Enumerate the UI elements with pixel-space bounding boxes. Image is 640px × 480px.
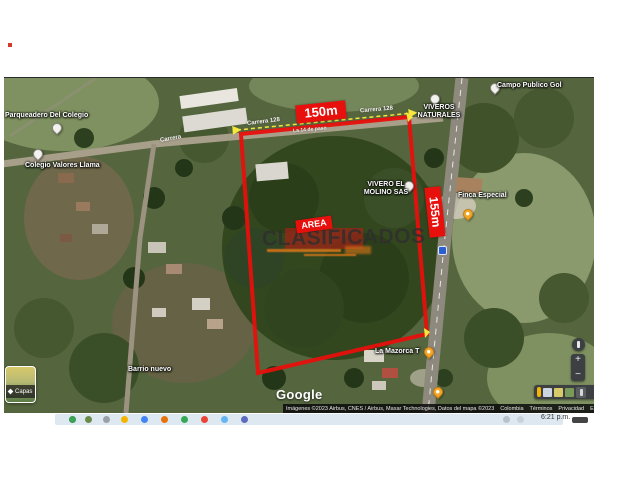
zoom-control[interactable]: + − [571, 354, 585, 381]
notification-icon[interactable] [572, 417, 588, 423]
taskbar-tray-icon[interactable] [503, 416, 510, 423]
map-thumbnail[interactable] [565, 388, 574, 397]
attribution-link-colombia[interactable]: Colombia [500, 406, 523, 412]
taskbar-app-icon[interactable] [241, 416, 248, 423]
watermark-orange-bar [304, 254, 356, 256]
taskbar-app-icon[interactable] [141, 416, 148, 423]
map-attribution-bar: Imágenes ©2023 Airbus, CNES / Airbus, Ma… [283, 404, 594, 413]
watermark-orange-bar [267, 249, 341, 252]
pegman-icon[interactable] [537, 387, 541, 397]
taskbar-clock[interactable]: 6:21 p.m. [541, 414, 570, 421]
zoom-out-button[interactable]: − [575, 369, 581, 381]
map-thumbnail[interactable] [543, 388, 552, 397]
zoom-in-button[interactable]: + [575, 354, 581, 366]
layers-icon [8, 389, 14, 395]
street-view-button[interactable] [572, 338, 585, 351]
map-thumbnail[interactable] [554, 388, 563, 397]
taskbar-app-icon[interactable] [161, 416, 168, 423]
red-speck-mark [8, 43, 12, 47]
attribution-link-feedback[interactable]: Enviar comentarios [590, 406, 594, 412]
taskbar-app-icon[interactable] [103, 416, 110, 423]
layers-control[interactable]: Capas [5, 366, 36, 403]
attribution-link-privacy[interactable]: Privacidad [558, 406, 584, 412]
classifieds-watermark: CLASIFICADOS [262, 225, 426, 252]
watermark-orange-mark [345, 246, 371, 254]
satellite-map[interactable]: CLASIFICADOS 150m 155m AREA Parqueadero … [4, 77, 594, 413]
taskbar-app-icon[interactable] [69, 416, 76, 423]
google-logo: Google [276, 387, 323, 402]
layers-label: Capas [15, 389, 32, 395]
attribution-link-terms[interactable]: Términos [530, 406, 553, 412]
route-shield-icon [438, 246, 447, 255]
taskbar-app-icon[interactable] [121, 416, 128, 423]
taskbar-tray-icon[interactable] [517, 416, 524, 423]
taskbar[interactable] [55, 414, 563, 425]
imagery-credit: Imágenes ©2023 Airbus, CNES / Airbus, Ma… [286, 406, 494, 412]
taskbar-app-icon[interactable] [201, 416, 208, 423]
taskbar-app-icon[interactable] [181, 416, 188, 423]
fullscreen-person-icon[interactable] [576, 387, 586, 398]
screenshot-canvas: CLASIFICADOS 150m 155m AREA Parqueadero … [0, 0, 640, 480]
taskbar-app-icon[interactable] [85, 416, 92, 423]
pegman-bar[interactable] [534, 385, 594, 399]
taskbar-app-icon[interactable] [221, 416, 228, 423]
